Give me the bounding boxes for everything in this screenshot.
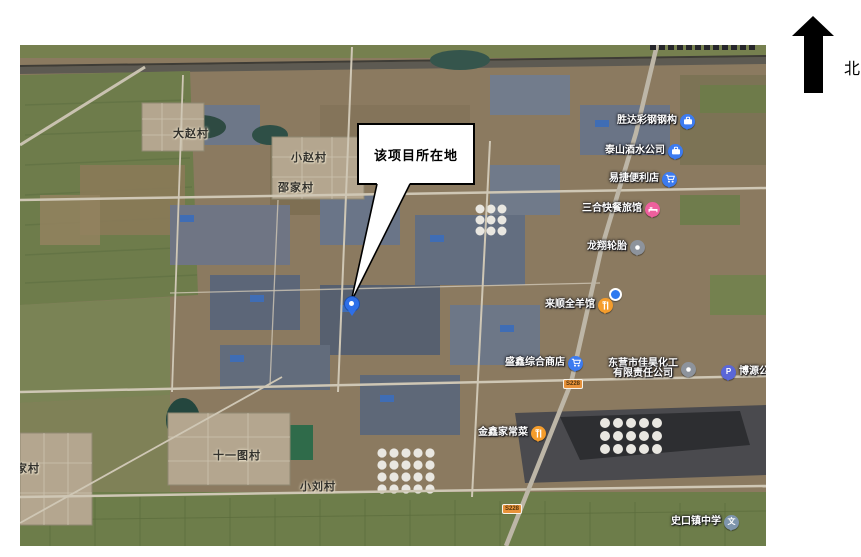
project-location-marker[interactable] — [344, 296, 360, 312]
poi-jinxin-restaurant[interactable]: 金鑫家常菜 — [478, 425, 546, 441]
fork-knife-icon[interactable] — [598, 298, 613, 313]
project-callout-text: 该项目所在地 — [374, 145, 458, 164]
village-label-jiacun-partial: 家村 — [20, 464, 40, 475]
village-label-shiyitu: 十一图村 — [213, 451, 261, 462]
poi-yijie-store[interactable]: 易捷便利店 — [609, 171, 677, 187]
poi-label: 博源公司 — [739, 367, 766, 377]
satellite-map[interactable]: 大赵村 小赵村 邵家村 十一图村 小刘村 家村 胜达彩钢钢构 泰山酒水公司 易捷… — [20, 45, 766, 546]
poi-label: 龙翔轮胎 — [587, 242, 627, 252]
village-label-dazhao: 大赵村 — [173, 129, 209, 140]
poi-shengda-steel[interactable]: 胜达彩钢钢构 — [617, 113, 695, 129]
poi-label: 金鑫家常菜 — [478, 428, 528, 438]
poi-label: 胜达彩钢钢构 — [617, 116, 677, 126]
briefcase-icon[interactable] — [668, 144, 683, 159]
dot-icon[interactable] — [681, 362, 696, 377]
north-arrow-shaft — [804, 36, 823, 93]
village-label-xiaoliu: 小刘村 — [300, 482, 336, 493]
north-label: 北 — [844, 62, 860, 78]
road-shield-s228: S228 — [563, 379, 583, 389]
poi-dongying-jiahao-chemical[interactable]: 东营市佳昊化工 有限责任公司 — [608, 357, 696, 381]
shopping-cart-icon[interactable] — [568, 356, 583, 371]
bed-icon[interactable] — [645, 202, 660, 217]
shopping-cart-icon[interactable] — [662, 172, 677, 187]
parking-icon[interactable]: P — [721, 365, 736, 380]
poi-longxiang-tires[interactable]: 龙翔轮胎 — [587, 239, 645, 255]
poi-taishan-beverage[interactable]: 泰山酒水公司 — [605, 143, 683, 159]
fork-knife-icon[interactable] — [531, 426, 546, 441]
poi-shikou-middle-school[interactable]: 史口镇中学 文 — [671, 514, 739, 530]
poi-shengxin-shop[interactable]: 盛鑫综合商店 — [505, 355, 583, 371]
poi-label: 易捷便利店 — [609, 174, 659, 184]
north-arrow-head — [792, 16, 834, 36]
poi-label: 泰山酒水公司 — [605, 146, 665, 156]
poi-label: 来顺全羊馆 — [545, 300, 595, 310]
poi-laishun-restaurant[interactable]: 来顺全羊馆 — [545, 297, 613, 313]
road-shield-s228: S228 — [502, 504, 522, 514]
project-callout-box: 该项目所在地 — [357, 123, 475, 185]
school-glyph: 文 — [728, 518, 736, 526]
poi-sanhe-hotel[interactable]: 三合快餐旅馆 — [582, 201, 660, 217]
poi-boyuan-company-parking[interactable]: P 博源公司 — [721, 364, 766, 380]
poi-label: 东营市佳昊化工 有限责任公司 — [608, 359, 678, 379]
poi-label: 盛鑫综合商店 — [505, 358, 565, 368]
school-icon[interactable]: 文 — [724, 515, 739, 530]
dot-icon[interactable] — [630, 240, 645, 255]
poi-label: 三合快餐旅馆 — [582, 204, 642, 214]
briefcase-icon[interactable] — [680, 114, 695, 129]
north-arrow-icon — [792, 16, 834, 93]
village-label-shaojia: 邵家村 — [278, 183, 314, 194]
figure-project-location-map: { "compass": { "label": "北" }, "callout"… — [0, 0, 861, 557]
parking-glyph: P — [726, 368, 731, 376]
village-label-xiaozhao: 小赵村 — [291, 153, 327, 164]
poi-label: 史口镇中学 — [671, 517, 721, 527]
clipped-label-top-edge — [650, 45, 756, 50]
